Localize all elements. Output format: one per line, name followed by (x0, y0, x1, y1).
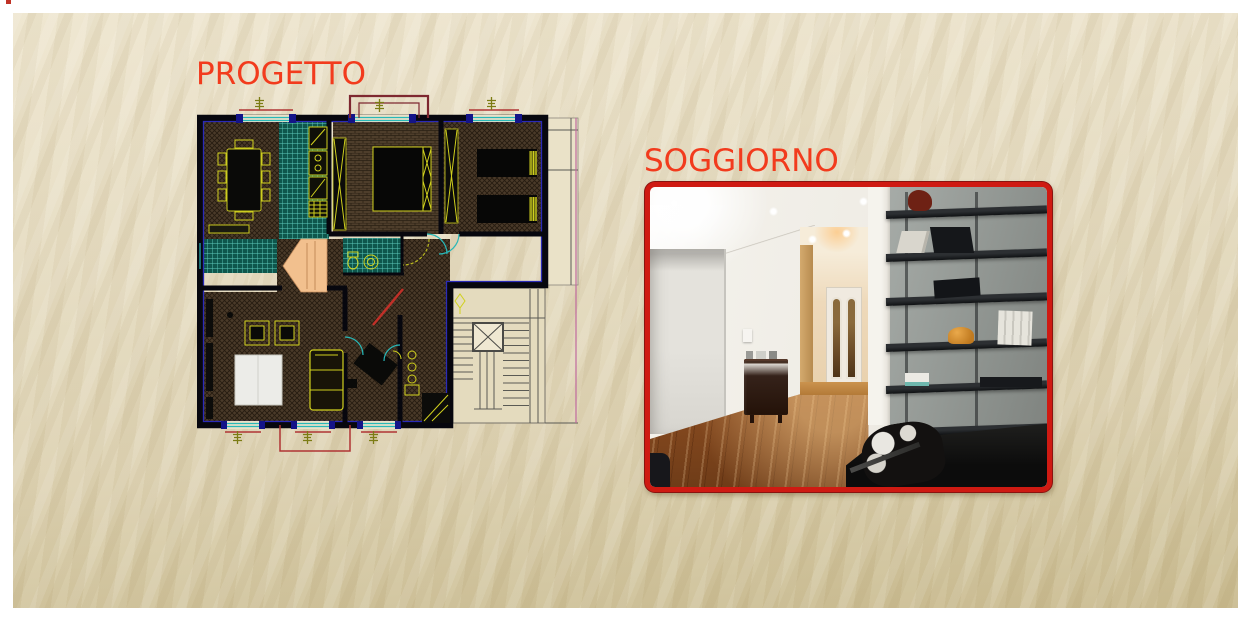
double-doors (826, 287, 862, 391)
photo-title: SOGGIORNO (644, 144, 839, 178)
hallway (800, 227, 868, 395)
hallway-spotlight (842, 229, 851, 238)
ceiling-spotlight (670, 199, 679, 208)
presentation-slide: PROGETTO (13, 13, 1238, 608)
cabinet-leg (750, 415, 754, 423)
hallway-spotlight (808, 235, 817, 244)
book-stack (997, 310, 1032, 345)
dark-shelf-items (980, 377, 1042, 387)
leaning-books (933, 277, 980, 298)
floor-plan-title: PROGETTO (196, 57, 366, 91)
cabinet-top-objects (746, 351, 786, 359)
door-glass-panel (846, 297, 857, 379)
living-room-photo (645, 182, 1052, 492)
slide-page: PROGETTO (0, 0, 1250, 625)
wood-cabinet (744, 359, 788, 415)
floor-plan-drawing (197, 93, 583, 455)
ceiling-spotlight (859, 197, 868, 206)
orange-helmet (948, 327, 974, 344)
hallway-floor (800, 382, 868, 395)
sofa-arm-foreground (650, 453, 670, 487)
hallway-light (814, 227, 860, 253)
black-books (930, 227, 974, 253)
cabinet-leg (778, 415, 782, 423)
shelf-figurine (908, 190, 932, 211)
tissue-box (905, 373, 929, 386)
wall-niche (650, 249, 726, 434)
ceiling-spotlight (769, 207, 778, 216)
door-glass-panel (831, 297, 842, 379)
floorplan-hall-tiles (203, 239, 277, 273)
elevator-shaft (473, 323, 503, 351)
wood-column (800, 245, 813, 395)
recording-artifact (6, 0, 11, 4)
wall-thermostat (743, 329, 752, 342)
white-books (896, 231, 929, 253)
